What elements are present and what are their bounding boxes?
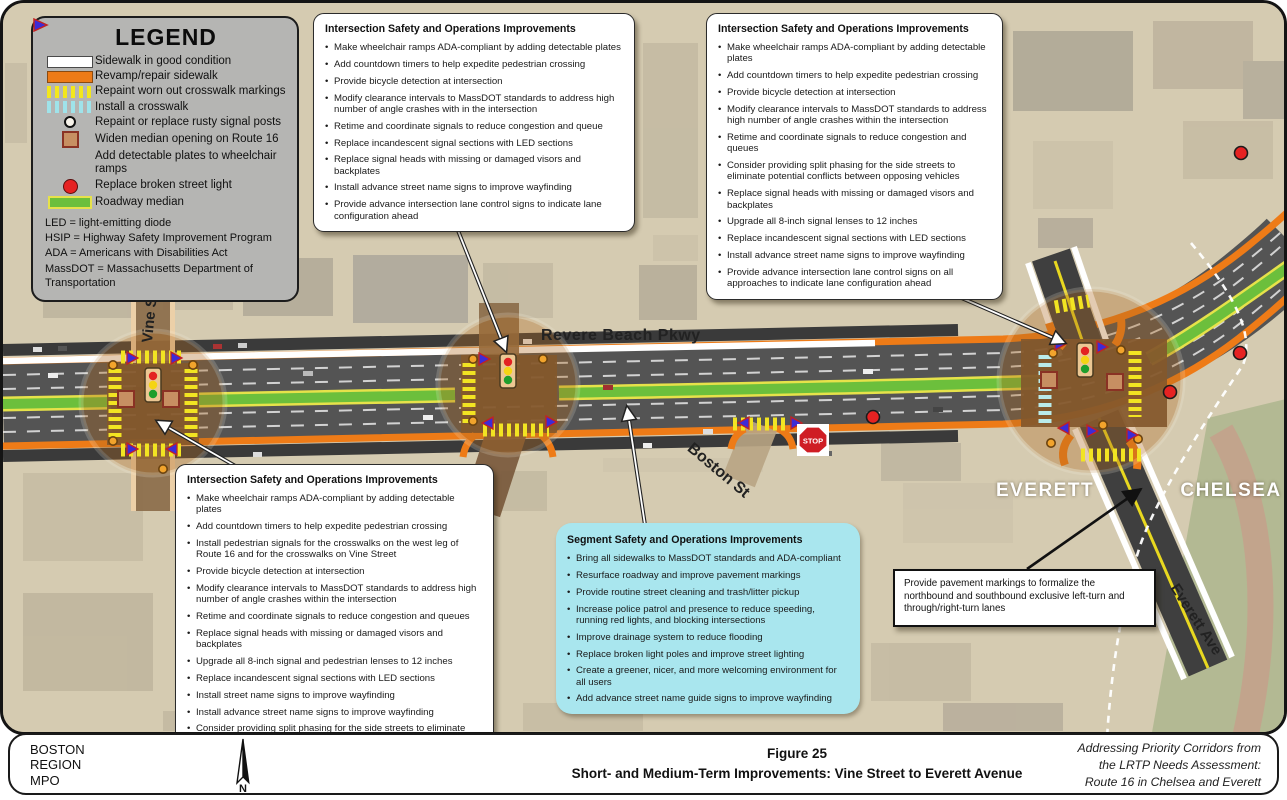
callout-bullet: Increase police patrol and presence to r… <box>567 604 849 627</box>
callout-bullet: Modify clearance intervals to MassDOT st… <box>187 583 482 606</box>
callout-bullet: Create a greener, nicer, and more welcom… <box>567 665 849 688</box>
callout-bullet: Make wheelchair ramps ADA-compliant by a… <box>325 42 623 53</box>
callout-bullet: Retime and coordinate signals to reduce … <box>325 121 623 132</box>
callout-bullet-list: Make wheelchair ramps ADA-compliant by a… <box>325 42 623 222</box>
callout-bullet: Upgrade all 8-inch signal and pedestrian… <box>187 656 482 667</box>
callout-bullet: Replace incandescent signal sections wit… <box>325 138 623 149</box>
callout-title: Segment Safety and Operations Improvemen… <box>567 534 849 546</box>
legend-swatch-broken-light <box>63 179 78 194</box>
stop-sign: STOP <box>797 424 829 456</box>
legend-item: Add detectable plates to wheelchair ramp… <box>45 150 287 176</box>
legend-swatch-rusty-posts <box>64 116 76 128</box>
callout-bullet: Upgrade all 8-inch signal lenses to 12 i… <box>718 216 991 227</box>
callout-bullet: Add countdown timers to help expedite pe… <box>718 70 991 81</box>
stop-sign-text: STOP <box>803 437 823 446</box>
figure-number: Figure 25 <box>490 744 1104 764</box>
callout-bullet: Provide bicycle detection at intersectio… <box>325 76 623 87</box>
callout-everett-intersection: Intersection Safety and Operations Impro… <box>706 13 1003 300</box>
org-name: BOSTON REGION MPO <box>30 742 85 788</box>
callout-bullet: Replace signal heads with missing or dam… <box>325 154 623 177</box>
legend-item: Sidewalk in good condition <box>45 55 287 68</box>
callout-bullet: Add countdown timers to help expedite pe… <box>187 521 482 532</box>
callout-title: Intersection Safety and Operations Impro… <box>718 23 991 35</box>
callout-bullet: Modify clearance intervals to MassDOT st… <box>325 93 623 116</box>
callout-bullet: Replace incandescent signal sections wit… <box>718 233 991 244</box>
legend-swatch-repaint-crosswalk <box>47 86 93 98</box>
legend-item: Replace broken street light <box>45 179 287 194</box>
callout-bullet: Replace signal heads with missing or dam… <box>187 628 482 651</box>
callout-bullet: Replace broken light poles and improve s… <box>567 649 849 660</box>
legend-item: Repaint or replace rusty signal posts <box>45 116 287 129</box>
callout-bullet: Resurface roadway and improve pavement m… <box>567 570 849 581</box>
legend-swatch-sidewalk-good <box>47 56 93 68</box>
callout-title: Intersection Safety and Operations Impro… <box>325 23 623 35</box>
callout-bullet: Provide bicycle detection at intersectio… <box>718 87 991 98</box>
callout-bullet: Retime and coordinate signals to reduce … <box>187 611 482 622</box>
callout-pavement-markings: Provide pavement markings to formalize t… <box>893 569 1156 627</box>
callout-bullet: Provide routine street cleaning and tras… <box>567 587 849 598</box>
legend-abbreviations: LED = light-emitting diode HSIP = Highwa… <box>45 216 287 290</box>
callout-vine-intersection: Intersection Safety and Operations Impro… <box>175 464 494 735</box>
figure-caption: Short- and Medium-Term Improvements: Vin… <box>490 764 1104 784</box>
callout-bullet: Improve drainage system to reduce floodi… <box>567 632 849 643</box>
callout-bullet: Install pedestrian signals for the cross… <box>187 538 482 561</box>
label-city-everett: EVERETT <box>975 480 1115 502</box>
legend-item: Roadway median <box>45 196 287 209</box>
label-city-chelsea: CHELSEA <box>1161 480 1287 502</box>
callout-bullet: Add advance street name guide signs to i… <box>567 693 849 704</box>
callout-bullet: Retime and coordinate signals to reduce … <box>718 132 991 155</box>
figure-title: Figure 25 Short- and Medium-Term Improve… <box>490 744 1104 785</box>
callout-bullet: Install advance street name signs to imp… <box>718 250 991 261</box>
legend-item: Widen median opening on Route 16 <box>45 131 287 148</box>
callout-segment-improvements: Segment Safety and Operations Improvemen… <box>556 523 860 714</box>
callout-bullet: Add countdown timers to help expedite pe… <box>325 59 623 70</box>
legend-box: LEGEND Sidewalk in good condition Revamp… <box>31 16 299 302</box>
callout-bullet: Install street name signs to improve way… <box>187 690 482 701</box>
callout-title: Intersection Safety and Operations Impro… <box>187 474 482 486</box>
callout-bullet-list: Make wheelchair ramps ADA-compliant by a… <box>718 42 991 289</box>
callout-bullet: Make wheelchair ramps ADA-compliant by a… <box>718 42 991 65</box>
callout-bullet: Provide advance intersection lane contro… <box>325 199 623 222</box>
label-revere-beach-pkwy: Revere Beach Pkwy <box>541 327 701 345</box>
callout-bullet: Consider providing split phasing for the… <box>718 160 991 183</box>
pavement-note-text: Provide pavement markings to formalize t… <box>904 578 1125 614</box>
legend-item: Revamp/repair sidewalk <box>45 70 287 83</box>
callout-bullet: Install advance street name signs to imp… <box>187 707 482 718</box>
legend-swatch-roadway-median <box>48 196 92 209</box>
legend-swatch-revamp-sidewalk <box>47 71 93 83</box>
callout-bullet: Provide advance intersection lane contro… <box>718 267 991 290</box>
north-arrow: N <box>230 737 256 799</box>
north-label: N <box>239 783 247 794</box>
callout-bullet: Modify clearance intervals to MassDOT st… <box>718 104 991 127</box>
callout-bullet: Replace incandescent signal sections wit… <box>187 673 482 684</box>
source-note: Addressing Priority Corridors from the L… <box>1077 740 1261 790</box>
callout-bullet-list: Bring all sidewalks to MassDOT standards… <box>567 553 849 705</box>
callout-bullet: Bring all sidewalks to MassDOT standards… <box>567 553 849 564</box>
legend-swatch-widen-median <box>62 131 79 148</box>
callout-bullet-list: Make wheelchair ramps ADA-compliant by a… <box>187 493 482 735</box>
legend-swatch-detectable-plates <box>33 18 49 32</box>
legend-item: Repaint worn out crosswalk markings <box>45 85 287 98</box>
figure-footer: BOSTON REGION MPO N Figure 25 Short- and… <box>8 733 1279 795</box>
figure-25-sheet: STOP Revere Beach Pkwy Vine St Vale St B… <box>0 0 1287 800</box>
callout-bullet: Replace signal heads with missing or dam… <box>718 188 991 211</box>
legend-title: LEGEND <box>45 24 287 51</box>
callout-bullet: Install advance street name signs to imp… <box>325 182 623 193</box>
callout-bullet: Provide bicycle detection at intersectio… <box>187 566 482 577</box>
callout-vale-intersection: Intersection Safety and Operations Impro… <box>313 13 635 232</box>
legend-swatch-install-crosswalk <box>47 101 93 113</box>
legend-item: Install a crosswalk <box>45 101 287 114</box>
callout-bullet: Make wheelchair ramps ADA-compliant by a… <box>187 493 482 516</box>
corridor-map: STOP Revere Beach Pkwy Vine St Vale St B… <box>0 0 1287 735</box>
